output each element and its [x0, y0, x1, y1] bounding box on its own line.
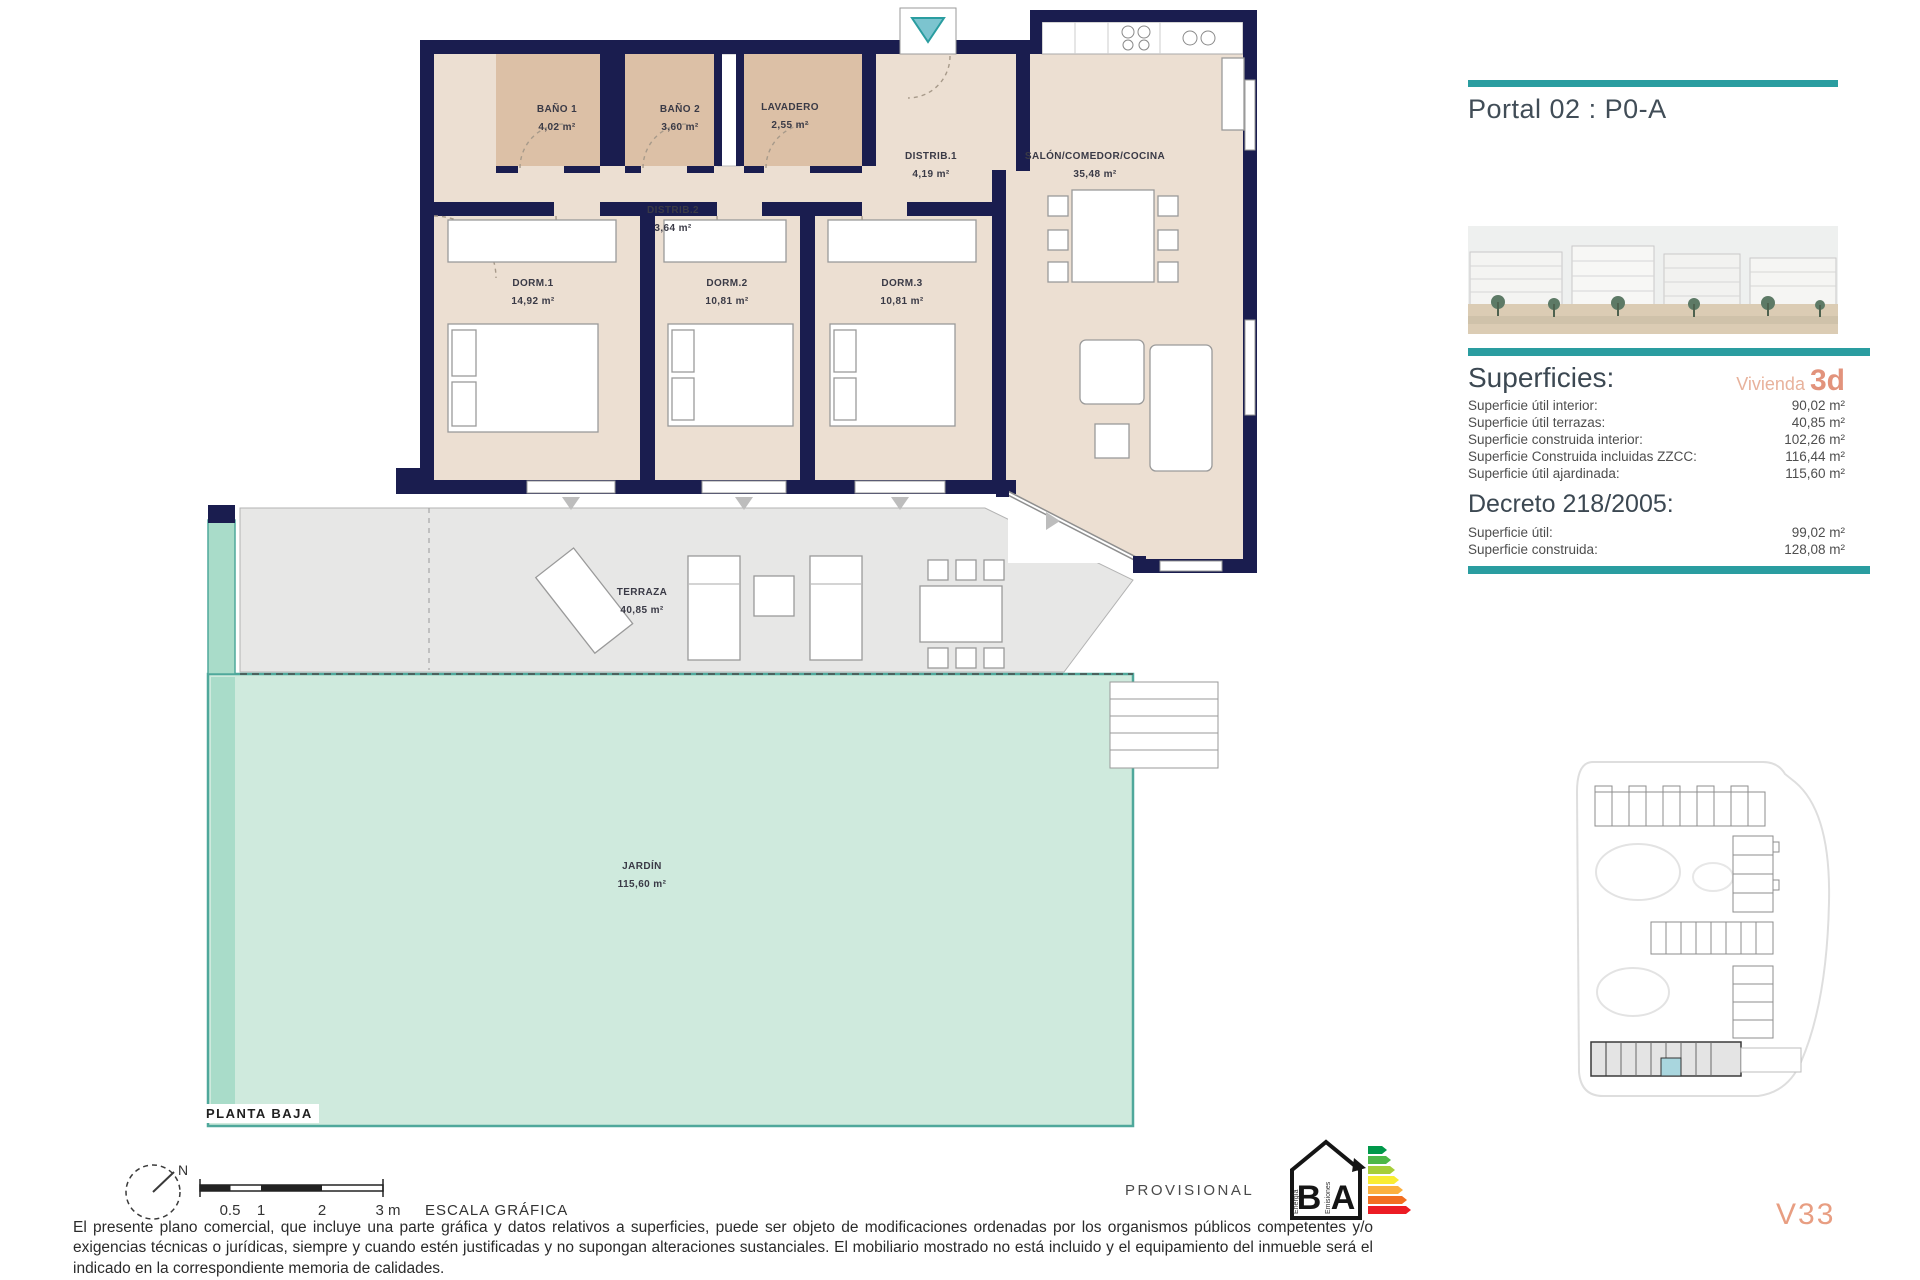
svg-text:N: N [178, 1162, 188, 1178]
room-label-dorm3: DORM.310,81 m² [880, 275, 923, 310]
floor-plan-sheet: BAÑO 14,02 m² BAÑO 23,60 m² LAVADERO2,55… [0, 0, 1920, 1280]
room-label-bano2: BAÑO 23,60 m² [660, 101, 700, 136]
svg-text:B: B [1297, 1179, 1322, 1217]
decreto-row: Superficie útil:99,02 m² [1468, 524, 1845, 541]
garden-area [208, 674, 1133, 1126]
svg-text:Energía: Energía [1293, 1189, 1300, 1214]
superficies-rows: Superficie útil interior:90,02 m² Superf… [1468, 397, 1845, 482]
svg-text:0.5: 0.5 [220, 1202, 241, 1219]
superficie-row: Superficie construida interior:102,26 m² [1468, 431, 1845, 448]
decreto-row: Superficie construida:128,08 m² [1468, 541, 1845, 558]
superficie-row: Superficie útil terrazas:40,85 m² [1468, 414, 1845, 431]
room-label-dorm1: DORM.114,92 m² [511, 275, 554, 310]
room-label-distrib1: DISTRIB.14,19 m² [905, 148, 957, 183]
room-label-lavadero: LAVADERO2,55 m² [761, 99, 819, 134]
vivienda-code: Vivienda 3d [1640, 364, 1845, 398]
room-label-terraza: TERRAZA40,85 m² [617, 584, 668, 619]
portal-title: Portal 02 : P0-A [1468, 94, 1667, 125]
superficie-row: Superficie útil ajardinada:115,60 m² [1468, 465, 1845, 482]
floor-label: PLANTA BAJA [200, 1104, 319, 1123]
superficie-row: Superficie Construida incluidas ZZCC:116… [1468, 448, 1845, 465]
scale-label: ESCALA GRÁFICA [425, 1202, 568, 1219]
energy-scale-bars [1368, 1146, 1411, 1214]
room-label-salon: SALÓN/COMEDOR/COCINA35,48 m² [1025, 148, 1165, 183]
room-label-jardin: JARDÍN115,60 m² [618, 858, 667, 893]
svg-text:A: A [1331, 1179, 1356, 1217]
room-label-bano1: BAÑO 14,02 m² [537, 101, 577, 136]
superficies-heading: Superficies: [1468, 362, 1614, 394]
decreto-rows: Superficie útil:99,02 m² Superficie cons… [1468, 524, 1845, 558]
svg-text:2: 2 [318, 1202, 326, 1219]
graphic-scale-bar [200, 1179, 383, 1197]
energy-certificate-icon: B A Energía Emisiones [1282, 1126, 1417, 1226]
building-render-image [1468, 226, 1838, 334]
plan-version: V33 [1776, 1198, 1835, 1232]
kitchen-counter [1042, 22, 1243, 54]
room-label-distrib2: DISTRIB.23,64 m² [647, 202, 699, 237]
stairs [1110, 682, 1218, 768]
svg-text:Emisiones: Emisiones [1325, 1181, 1332, 1214]
site-plan-current-unit [1661, 1058, 1681, 1076]
superficie-row: Superficie útil interior:90,02 m² [1468, 397, 1845, 414]
decreto-heading: Decreto 218/2005: [1468, 490, 1674, 519]
provisional-label: PROVISIONAL [1125, 1182, 1254, 1199]
svg-text:1: 1 [257, 1202, 265, 1219]
superficies-bottom-bar [1468, 566, 1870, 574]
site-plan-minimap [1563, 752, 1848, 1117]
title-accent-bar [1468, 80, 1838, 87]
legal-disclaimer: El presente plano comercial, que incluye… [73, 1218, 1373, 1279]
room-label-dorm2: DORM.210,81 m² [705, 275, 748, 310]
superficies-top-bar [1468, 348, 1870, 356]
svg-text:3 m: 3 m [375, 1202, 400, 1219]
